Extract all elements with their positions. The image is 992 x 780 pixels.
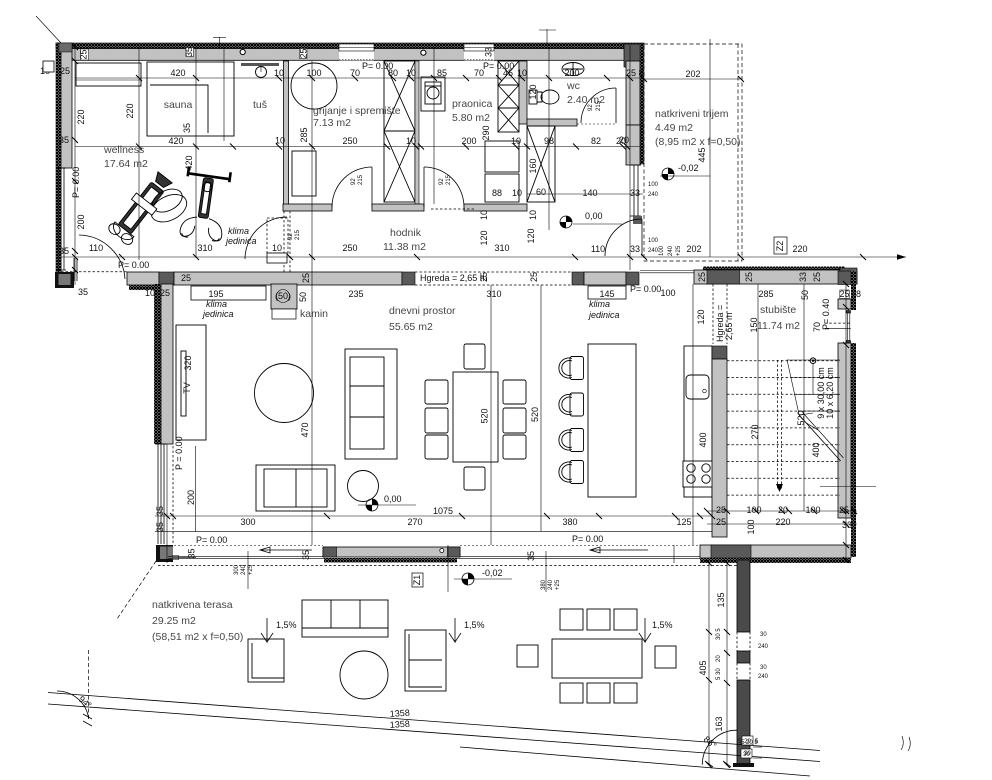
svg-text:1,5%: 1,5% — [276, 620, 297, 630]
svg-text:240: 240 — [668, 245, 674, 256]
svg-text:klima: klima — [206, 299, 227, 309]
svg-text:29.25 m2: 29.25 m2 — [152, 615, 196, 627]
svg-text:17.64 m2: 17.64 m2 — [104, 158, 148, 170]
svg-text:82: 82 — [591, 136, 601, 146]
svg-text:35: 35 — [59, 246, 69, 256]
svg-text:405: 405 — [698, 660, 708, 675]
svg-text:92: 92 — [351, 178, 357, 185]
svg-text:10: 10 — [512, 188, 522, 198]
svg-text:(8,95 m2 x f=0,50): (8,95 m2 x f=0,50) — [655, 136, 741, 148]
svg-text:jedinica: jedinica — [588, 310, 620, 320]
svg-text:+25: +25 — [248, 564, 254, 575]
svg-text:5 20 5: 5 20 5 — [741, 740, 758, 746]
svg-text:250: 250 — [342, 136, 357, 146]
svg-text:20: 20 — [716, 655, 722, 662]
svg-text:20: 20 — [778, 505, 788, 515]
svg-text:33: 33 — [842, 520, 852, 530]
svg-text:10: 10 — [274, 68, 284, 78]
svg-text:92: 92 — [439, 178, 445, 185]
svg-text:33: 33 — [484, 47, 494, 57]
svg-text:140: 140 — [582, 188, 597, 198]
svg-text:25: 25 — [716, 505, 726, 515]
svg-text:sauna: sauna — [164, 99, 193, 111]
svg-text:120: 120 — [526, 228, 536, 243]
svg-text:P= 0.00: P= 0.00 — [572, 534, 603, 544]
svg-text:Hgreda = 2,65 m: Hgreda = 2,65 m — [420, 273, 487, 283]
svg-text:klima: klima — [228, 226, 249, 236]
svg-text:285: 285 — [299, 127, 309, 142]
svg-text:Z2: Z2 — [775, 241, 785, 252]
svg-text:50: 50 — [800, 290, 810, 300]
svg-text:35: 35 — [182, 123, 192, 133]
svg-text:150: 150 — [749, 317, 759, 332]
svg-text:25: 25 — [839, 289, 849, 299]
svg-text:35: 35 — [301, 550, 311, 560]
svg-text:220: 220 — [775, 517, 790, 527]
svg-text:100: 100 — [660, 288, 675, 298]
svg-text:30: 30 — [760, 632, 767, 638]
svg-text:25: 25 — [744, 272, 754, 282]
svg-text:dnevni prostor: dnevni prostor — [389, 305, 456, 317]
svg-text:125: 125 — [676, 517, 691, 527]
svg-text:7.13 m2: 7.13 m2 — [313, 117, 351, 129]
svg-text:-0,02: -0,02 — [678, 163, 699, 173]
svg-text:100: 100 — [648, 182, 659, 188]
svg-text:klima: klima — [589, 299, 610, 309]
svg-text:25: 25 — [79, 49, 89, 59]
svg-text:200: 200 — [461, 136, 476, 146]
svg-text:240: 240 — [648, 192, 659, 198]
svg-text:420: 420 — [170, 68, 185, 78]
svg-text:P = 0.00: P = 0.00 — [174, 436, 184, 470]
svg-text:88: 88 — [492, 188, 502, 198]
svg-text:25: 25 — [812, 272, 822, 282]
svg-text:215: 215 — [596, 100, 602, 111]
svg-text:98: 98 — [544, 136, 554, 146]
svg-text:30 5: 30 5 — [716, 628, 722, 640]
svg-text:stubište: stubište — [760, 304, 796, 316]
svg-text:35: 35 — [155, 506, 165, 516]
svg-text:92: 92 — [588, 104, 594, 111]
svg-text:215: 215 — [446, 174, 452, 185]
svg-text:25: 25 — [301, 273, 311, 283]
svg-text:520: 520 — [530, 407, 540, 422]
svg-text:natkriveni trijem: natkriveni trijem — [655, 108, 729, 120]
svg-text:25: 25 — [160, 288, 170, 298]
svg-text:10: 10 — [479, 210, 489, 220]
svg-text:P= 0.00: P= 0.00 — [196, 535, 227, 545]
svg-text:235: 235 — [348, 289, 363, 299]
svg-text:P= 0.00: P= 0.00 — [630, 284, 661, 294]
svg-text:33: 33 — [630, 244, 640, 254]
svg-text:praonica: praonica — [452, 98, 492, 110]
svg-text:120: 120 — [528, 84, 538, 99]
svg-text:240: 240 — [758, 674, 769, 680]
svg-text:100: 100 — [746, 505, 761, 515]
svg-text:80: 80 — [388, 68, 398, 78]
svg-text:200: 200 — [76, 214, 86, 229]
svg-text:270: 270 — [750, 424, 760, 439]
svg-text:240: 240 — [548, 579, 554, 590]
svg-text:jedinica: jedinica — [225, 236, 257, 246]
svg-text:250: 250 — [342, 243, 357, 253]
svg-text:310: 310 — [494, 243, 509, 253]
svg-text:11.38 m2: 11.38 m2 — [383, 241, 426, 253]
svg-text:kamin: kamin — [300, 308, 328, 320]
svg-text:11.74 m2: 11.74 m2 — [757, 320, 800, 332]
svg-text:380: 380 — [541, 579, 547, 590]
svg-text:240: 240 — [241, 564, 247, 575]
svg-text:0,00: 0,00 — [585, 211, 603, 221]
svg-text:5.80 m2: 5.80 m2 — [452, 112, 490, 124]
svg-text:215: 215 — [295, 229, 301, 240]
svg-text:P= 0.00: P= 0.00 — [118, 260, 149, 270]
svg-text:300: 300 — [240, 517, 255, 527]
svg-text:10 x 6,20 cm: 10 x 6,20 cm — [825, 367, 835, 419]
svg-text:310: 310 — [197, 243, 212, 253]
svg-text:220: 220 — [76, 109, 86, 124]
svg-text:240: 240 — [648, 248, 659, 254]
svg-text:4.49 m2: 4.49 m2 — [655, 122, 693, 134]
svg-text:100: 100 — [659, 245, 665, 256]
svg-text:202: 202 — [685, 69, 700, 79]
svg-text:P= 0.40: P= 0.40 — [821, 299, 831, 330]
svg-text:290: 290 — [481, 125, 491, 140]
svg-text:35: 35 — [526, 551, 536, 561]
svg-text:110: 110 — [591, 244, 605, 254]
svg-text:55.65 m2: 55.65 m2 — [389, 321, 433, 333]
svg-text:202: 202 — [686, 244, 701, 254]
svg-text:60: 60 — [536, 187, 546, 197]
svg-text:520: 520 — [480, 408, 490, 423]
svg-text:-0,02: -0,02 — [482, 568, 503, 578]
svg-text:8: 8 — [638, 68, 643, 78]
svg-text:215: 215 — [358, 174, 364, 185]
svg-text:8: 8 — [856, 289, 861, 299]
svg-text:10: 10 — [275, 136, 285, 146]
svg-text:220: 220 — [125, 103, 135, 118]
svg-text:1075: 1075 — [433, 506, 453, 516]
svg-text:hodnik: hodnik — [390, 227, 422, 239]
svg-text:110: 110 — [89, 243, 103, 253]
svg-text:100: 100 — [648, 238, 659, 244]
svg-text:50: 50 — [298, 292, 308, 302]
svg-text:tuš: tuš — [253, 99, 267, 111]
svg-text:135: 135 — [716, 592, 726, 607]
svg-text:92: 92 — [288, 233, 294, 240]
svg-text:70: 70 — [350, 68, 360, 78]
svg-text:10: 10 — [406, 136, 416, 146]
svg-text:TV: TV — [182, 382, 192, 394]
svg-text:Z1: Z1 — [412, 575, 422, 586]
svg-text:520: 520 — [796, 410, 806, 425]
svg-text:5 30: 5 30 — [716, 668, 722, 680]
svg-text:145: 145 — [599, 289, 614, 299]
svg-text:163: 163 — [714, 716, 724, 731]
svg-text:25: 25 — [529, 272, 539, 282]
svg-text:25: 25 — [479, 272, 489, 282]
svg-text:2,65 m: 2,65 m — [724, 312, 734, 340]
svg-text:100: 100 — [746, 519, 756, 534]
svg-text:35: 35 — [59, 135, 69, 145]
svg-text:35: 35 — [78, 287, 88, 297]
svg-text:1,5%: 1,5% — [652, 620, 673, 630]
svg-text:120: 120 — [479, 230, 489, 245]
svg-text:25: 25 — [60, 66, 70, 76]
svg-text:200: 200 — [186, 490, 196, 505]
svg-text:30: 30 — [760, 665, 767, 671]
svg-text:100: 100 — [805, 505, 820, 515]
svg-text:220: 220 — [792, 244, 807, 254]
svg-text:+25: +25 — [676, 245, 682, 256]
svg-text:1,5%: 1,5% — [464, 620, 485, 630]
svg-text:35: 35 — [155, 522, 165, 532]
svg-text:10: 10 — [406, 68, 416, 78]
svg-text:25: 25 — [716, 517, 726, 527]
svg-text:1358: 1358 — [389, 708, 410, 719]
svg-text:200: 200 — [564, 68, 579, 78]
svg-text:35: 35 — [184, 47, 194, 57]
svg-text:70: 70 — [812, 322, 822, 332]
svg-text:0,00: 0,00 — [384, 494, 402, 504]
svg-text:25: 25 — [839, 505, 849, 515]
svg-text:25: 25 — [697, 272, 707, 282]
svg-text:100: 100 — [306, 68, 321, 78]
svg-text:25: 25 — [181, 273, 191, 283]
svg-text:10: 10 — [517, 68, 527, 78]
svg-text:470: 470 — [300, 422, 310, 437]
svg-text:70: 70 — [474, 68, 484, 78]
svg-text:wc: wc — [566, 80, 580, 92]
svg-text:+25: +25 — [555, 579, 561, 590]
svg-text:jedinica: jedinica — [202, 309, 234, 319]
svg-text:420: 420 — [168, 136, 183, 146]
svg-text:10: 10 — [528, 210, 538, 220]
svg-text:natkrivena terasa: natkrivena terasa — [152, 599, 233, 611]
svg-text:240: 240 — [758, 644, 769, 650]
svg-text:160: 160 — [528, 158, 538, 173]
svg-text:310: 310 — [486, 289, 501, 299]
svg-text:10: 10 — [511, 136, 521, 146]
svg-text:420: 420 — [184, 155, 194, 170]
svg-text:400: 400 — [698, 432, 708, 447]
svg-text:10: 10 — [272, 243, 282, 253]
svg-text:270: 270 — [407, 517, 422, 527]
svg-text:320: 320 — [183, 355, 193, 370]
svg-text:380: 380 — [562, 517, 577, 527]
svg-text:400: 400 — [811, 442, 821, 457]
svg-text:(50): (50) — [275, 291, 291, 301]
svg-text:195: 195 — [208, 289, 223, 299]
svg-text:(58,51 m2 x f=0,50): (58,51 m2 x f=0,50) — [152, 631, 243, 643]
svg-text:300: 300 — [234, 564, 240, 575]
svg-text:445: 445 — [697, 147, 707, 162]
svg-text:85: 85 — [437, 68, 447, 78]
svg-text:10: 10 — [145, 288, 155, 298]
svg-text:25: 25 — [299, 48, 309, 58]
svg-text:30: 30 — [744, 751, 751, 757]
svg-text:33: 33 — [630, 188, 640, 198]
svg-text:285: 285 — [758, 289, 773, 299]
svg-text:120: 120 — [696, 309, 706, 324]
svg-text:25: 25 — [626, 68, 636, 78]
svg-text:1358: 1358 — [389, 719, 410, 730]
svg-text:20: 20 — [619, 135, 629, 145]
svg-text:45: 45 — [503, 68, 513, 78]
svg-text:grijanje i spremište: grijanje i spremište — [313, 105, 401, 117]
svg-text:33: 33 — [798, 272, 808, 282]
